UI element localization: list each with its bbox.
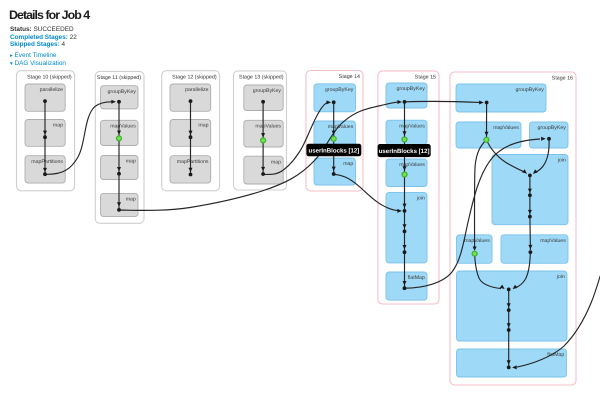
svg-text:Stage 10 (skipped): Stage 10 (skipped) xyxy=(27,74,72,80)
svg-text:mapValues: mapValues xyxy=(540,238,566,244)
svg-text:map: map xyxy=(126,197,136,203)
svg-text:groupByKey: groupByKey xyxy=(108,89,137,95)
svg-text:mapValues: mapValues xyxy=(493,125,519,131)
svg-text:flatMap: flatMap xyxy=(408,275,425,281)
svg-text:map: map xyxy=(126,159,136,165)
svg-text:parallelize: parallelize xyxy=(185,87,208,93)
svg-text:Stage 11 (skipped): Stage 11 (skipped) xyxy=(97,75,141,81)
svg-text:Stage 13 (skipped): Stage 13 (skipped) xyxy=(239,75,284,81)
svg-text:map: map xyxy=(271,159,281,165)
svg-text:mapValues: mapValues xyxy=(464,238,490,244)
svg-text:mapPartitions: mapPartitions xyxy=(31,159,63,165)
svg-text:join: join xyxy=(416,196,425,202)
svg-text:groupByKey: groupByKey xyxy=(325,87,354,93)
svg-text:Stage 16: Stage 16 xyxy=(552,76,573,82)
svg-text:map: map xyxy=(343,161,353,167)
svg-text:userInBlocks [12]: userInBlocks [12] xyxy=(308,147,359,154)
svg-text:join: join xyxy=(556,274,565,280)
svg-text:map: map xyxy=(198,123,208,129)
svg-text:mapValues: mapValues xyxy=(399,123,425,129)
svg-text:groupByKey: groupByKey xyxy=(516,87,545,93)
svg-text:join: join xyxy=(557,158,566,164)
svg-text:flatMap: flatMap xyxy=(547,352,564,358)
svg-text:Stage 14: Stage 14 xyxy=(339,74,360,80)
svg-text:mapPartitions: mapPartitions xyxy=(177,159,209,165)
svg-text:mapValues: mapValues xyxy=(255,124,281,130)
svg-text:groupByKey: groupByKey xyxy=(397,86,426,92)
svg-text:groupByKey: groupByKey xyxy=(253,88,282,94)
svg-text:mapValues: mapValues xyxy=(110,124,136,130)
svg-text:userInBlocks [12]: userInBlocks [12] xyxy=(379,148,430,155)
svg-text:Stage 15: Stage 15 xyxy=(415,75,436,81)
svg-text:groupByKey: groupByKey xyxy=(538,125,567,131)
svg-text:Stage 12 (skipped): Stage 12 (skipped) xyxy=(172,74,217,80)
svg-text:parallelize: parallelize xyxy=(40,87,63,93)
svg-text:map: map xyxy=(53,123,63,129)
